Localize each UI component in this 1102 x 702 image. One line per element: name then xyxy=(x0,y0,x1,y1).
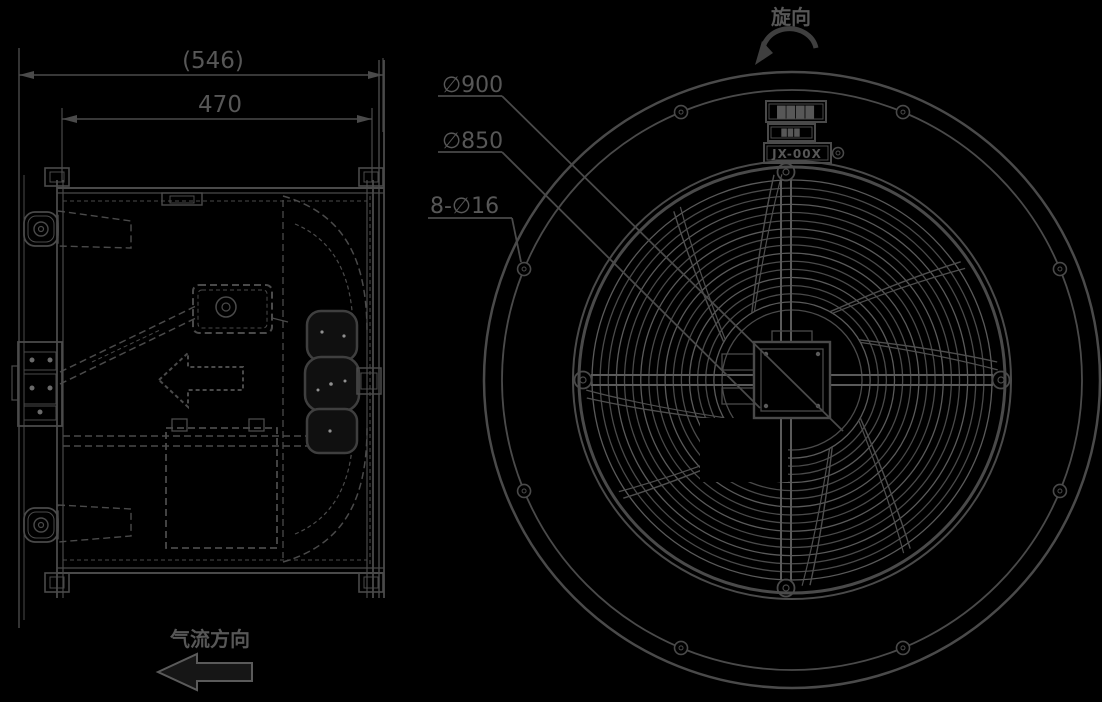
fan-blade-assembly xyxy=(283,196,381,562)
shaft-mount-inner xyxy=(361,373,377,389)
bolt-hole xyxy=(1053,484,1066,497)
grille-rib xyxy=(854,420,909,553)
bolt-hole xyxy=(675,106,688,119)
fan-technical-drawing: (546) 470 xyxy=(0,0,1102,702)
bolt-hole xyxy=(1053,263,1066,276)
motor-support-arm xyxy=(60,306,196,384)
side-view: (546) 470 xyxy=(12,48,384,690)
dim-depth: 470 xyxy=(62,92,372,182)
nameplate-bolt-center xyxy=(836,151,840,155)
arm-mount xyxy=(575,372,592,389)
dim-546-label: (546) xyxy=(182,48,244,74)
bolt-hole xyxy=(518,484,531,497)
bolt-spec-label: 8-∅16 xyxy=(430,194,499,219)
airflow-arrow-icon xyxy=(158,654,252,690)
airflow-direction: 气流方向 xyxy=(158,627,252,690)
mounting-bracket-bottom xyxy=(24,505,131,542)
bolt-hole xyxy=(896,641,909,654)
hub-tab xyxy=(722,388,754,404)
grille-rib xyxy=(832,263,965,318)
nameplate-row1: ████ xyxy=(776,105,815,119)
nameplate: ████ ███ JX-00X xyxy=(764,101,844,163)
bottom-box xyxy=(166,419,277,548)
flow-arrow-icon xyxy=(159,353,243,407)
bolt-hole xyxy=(518,263,531,276)
bottom-strut xyxy=(63,436,325,446)
grille-rib xyxy=(587,398,725,420)
nameplate-model-text: JX-00X xyxy=(771,147,822,161)
rotation-direction-label: 旋向 xyxy=(770,5,811,29)
mounting-bracket-top xyxy=(24,211,131,248)
dia-900-label: ∅900 xyxy=(442,73,503,98)
bolt-hole xyxy=(675,641,688,654)
airflow-direction-label: 气流方向 xyxy=(169,627,250,651)
fan-hub xyxy=(305,311,359,453)
arm-mount xyxy=(993,372,1010,389)
nameplate-row2: ███ xyxy=(780,128,800,137)
nameplate-bolt xyxy=(833,148,844,159)
rotation-arrow-head xyxy=(755,41,773,65)
grille-cutout xyxy=(700,418,788,482)
rotation-direction: 旋向 xyxy=(755,5,816,65)
bolt-hole xyxy=(896,106,909,119)
front-view: ∅900 ∅850 8-∅16 ████ ███ JX-00X xyxy=(428,5,1100,688)
bolt-spec-callout: 8-∅16 xyxy=(428,194,521,262)
motor-box xyxy=(193,285,288,333)
hub-tab xyxy=(722,354,754,370)
grille-rib xyxy=(752,175,774,313)
grille-rib xyxy=(859,340,997,362)
dia-850-label: ∅850 xyxy=(442,129,503,154)
dia-850-callout: ∅850 xyxy=(438,129,760,408)
technical-drawing-canvas: (546) 470 xyxy=(0,0,1102,702)
grille-rib xyxy=(810,447,832,585)
dim-470-label: 470 xyxy=(198,92,242,118)
